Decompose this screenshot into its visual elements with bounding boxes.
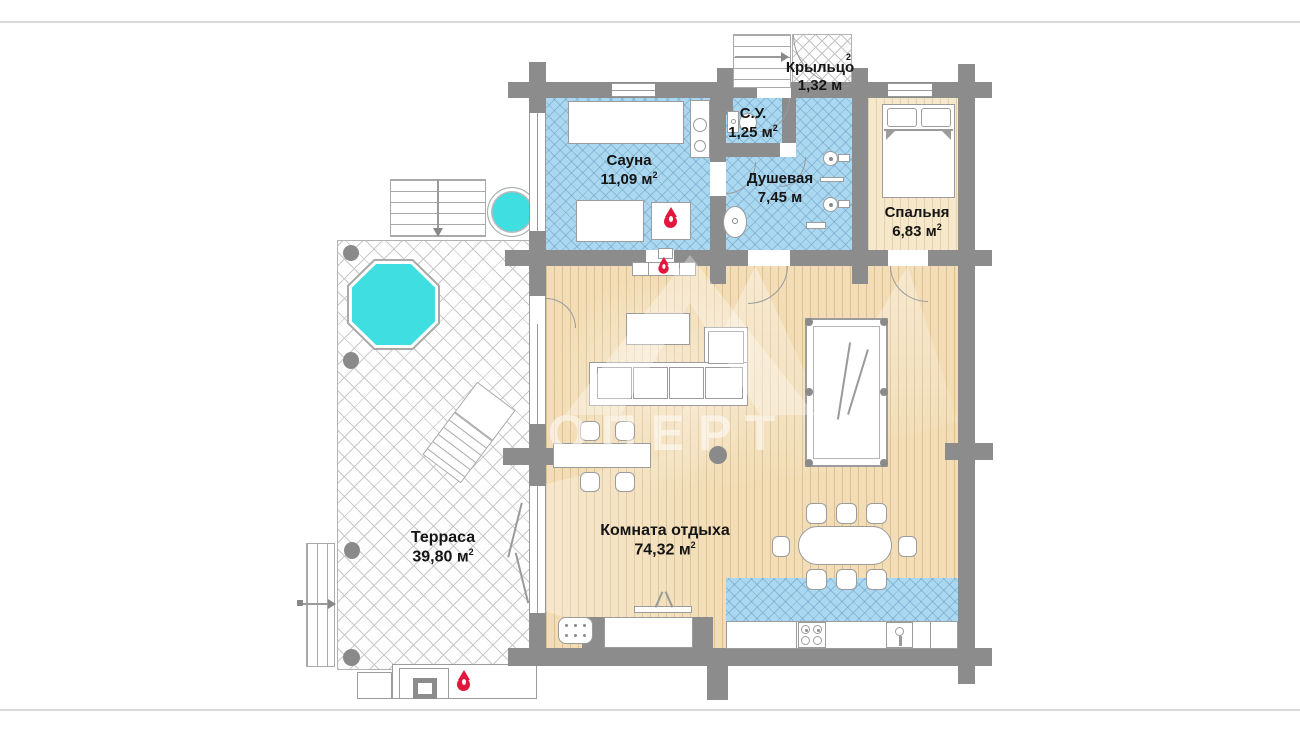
dining-chair (866, 503, 887, 524)
porch-arrow-line (735, 56, 783, 58)
log-stub (707, 648, 728, 700)
stairs-direction-line (437, 179, 439, 231)
game-table (558, 617, 593, 644)
room-label-spalnya: Спальня 6,83 м2 (855, 204, 979, 241)
arrow-origin-dot (297, 600, 303, 606)
kitchen-counter (726, 621, 958, 649)
area-superscript: 2 (846, 52, 851, 63)
shelf-divider (679, 263, 680, 275)
area-superscript: 2 (691, 540, 696, 550)
window-bench (604, 617, 693, 648)
door-gap-bedroom (888, 250, 928, 266)
room-name: С.У. (713, 105, 793, 123)
sauna-bench-top (568, 101, 684, 144)
glazing-line (888, 90, 932, 91)
room-name: Комната отдыха (565, 521, 765, 540)
sofa-cushion (597, 367, 632, 399)
area-superscript: 2 (652, 170, 657, 180)
room-area: 7,45 м (715, 188, 845, 207)
faucet (806, 222, 826, 229)
pocket (805, 318, 813, 326)
glazing-line (537, 486, 538, 613)
shelf-divider (648, 263, 649, 275)
shower-head (823, 151, 838, 166)
room-label-terrasa: Терраса 39,80 м2 (381, 528, 505, 567)
octagon-pool (347, 259, 440, 350)
window-pier (693, 617, 713, 648)
pocket (880, 318, 888, 326)
dining-chair (836, 503, 857, 524)
arrow-down-icon (433, 228, 443, 237)
frame-line-top (0, 21, 1300, 23)
wall-bottom (508, 648, 975, 666)
room-name: Сауна (569, 152, 689, 170)
sofa-cushion (705, 367, 743, 399)
log-stub (975, 82, 992, 98)
game-dot (583, 624, 586, 627)
dining-chair (806, 569, 827, 590)
game-dot (574, 624, 577, 627)
terrace-post (344, 542, 360, 559)
terrace-post (343, 649, 360, 666)
flame-icon (664, 215, 677, 228)
log-stub (945, 443, 993, 460)
blanket-fold (942, 131, 951, 140)
burner-dot (805, 629, 808, 632)
room-area: 6,83 м2 (855, 222, 979, 241)
door-gap-shower (748, 250, 790, 266)
flame-icon (658, 263, 668, 273)
tv-screen (634, 606, 692, 613)
floor-plan: ОПЕРТ 2 Крыльцо 1,32 м С.У. 1,25 м2 Саун… (0, 0, 1300, 731)
pillow (887, 108, 917, 127)
bar-stool (615, 472, 635, 492)
log-stub (975, 250, 992, 266)
sofa-cushion (633, 367, 668, 399)
room-name: Крыльцо (765, 59, 875, 77)
dining-chair (772, 536, 790, 557)
frame-line-bottom (0, 709, 1300, 711)
bbq-chimney (413, 678, 437, 699)
room-label-kryltso: 2 Крыльцо 1,32 м (765, 59, 875, 95)
glazing-line (612, 90, 655, 91)
dining-chair (898, 536, 917, 557)
window-sauna-top (612, 83, 655, 97)
room-label-dushevaya: Душевая 7,45 м (715, 170, 845, 207)
cooktop (798, 622, 826, 648)
pocket (805, 459, 813, 467)
pocket (805, 388, 813, 396)
lounge-left-slider (529, 486, 546, 613)
dining-chair (836, 569, 857, 590)
window-sauna-left (529, 113, 546, 231)
cue-stick (847, 349, 869, 415)
dining-table (798, 526, 892, 565)
kitchen-sink (886, 622, 913, 648)
dining-chair (806, 503, 827, 524)
room-label-komnata: Комната отдыха 74,32 м2 (565, 521, 765, 560)
billiard-table (805, 318, 888, 467)
bar-stool (580, 472, 600, 492)
game-dot (565, 634, 568, 637)
burner-dot (817, 629, 820, 632)
counter-divider (930, 622, 931, 648)
sofa-cushion (669, 367, 704, 399)
room-label-su: С.У. 1,25 м2 (713, 105, 793, 142)
wall-shower-bedroom (852, 68, 868, 284)
room-label-sauna: Сауна 11,09 м2 (569, 152, 689, 189)
arrow-right-icon (328, 599, 336, 609)
game-dot (565, 624, 568, 627)
shower-valve (838, 154, 850, 162)
area-superscript: 2 (773, 123, 778, 133)
wall-right (958, 64, 975, 684)
faucet-stem (899, 636, 902, 646)
window-bedroom-top (888, 83, 932, 97)
sauna-bench-bottom (576, 200, 644, 242)
pocket (880, 459, 888, 467)
room-area: 11,09 м2 (569, 170, 689, 189)
area-superscript: 2 (937, 222, 942, 232)
room-area: 39,80 м2 (381, 547, 505, 567)
room-area: 1,32 м (765, 77, 875, 95)
pool-water (352, 264, 435, 345)
burner (813, 625, 822, 634)
burner (813, 636, 822, 645)
faucet-head (895, 627, 904, 636)
room-name: Терраса (381, 528, 505, 547)
watermark-text: ОПЕРТ (548, 404, 789, 462)
glazing-line (537, 113, 538, 231)
log-stub (975, 648, 992, 666)
door-gap-su (780, 143, 796, 157)
room-area: 74,32 м2 (565, 540, 765, 560)
counter-divider (796, 622, 797, 648)
sink-drain (732, 218, 738, 224)
game-dot (583, 634, 586, 637)
terrace-post (343, 352, 359, 369)
stairs-arrow-line (300, 603, 330, 605)
sauna-sink (693, 118, 707, 132)
game-dot (574, 634, 577, 637)
glazing-line (537, 324, 538, 424)
room-name: Душевая (715, 170, 845, 188)
shower-head-center (829, 157, 833, 161)
pedestal-sink (723, 206, 747, 238)
room-area: 1,25 м2 (713, 123, 793, 142)
blanket-fold (886, 131, 895, 140)
burner (801, 636, 810, 645)
room-name: Спальня (855, 204, 979, 222)
flame-icon (457, 678, 470, 691)
bbq-side-table (357, 672, 392, 699)
lounge-left-opening (529, 296, 546, 424)
burner (801, 625, 810, 634)
sofa-cushion (708, 331, 744, 364)
pocket (880, 388, 888, 396)
dining-chair (866, 569, 887, 590)
coffee-table (626, 313, 690, 345)
area-superscript: 2 (469, 547, 474, 557)
pillow (921, 108, 951, 127)
sauna-sink (694, 140, 706, 152)
